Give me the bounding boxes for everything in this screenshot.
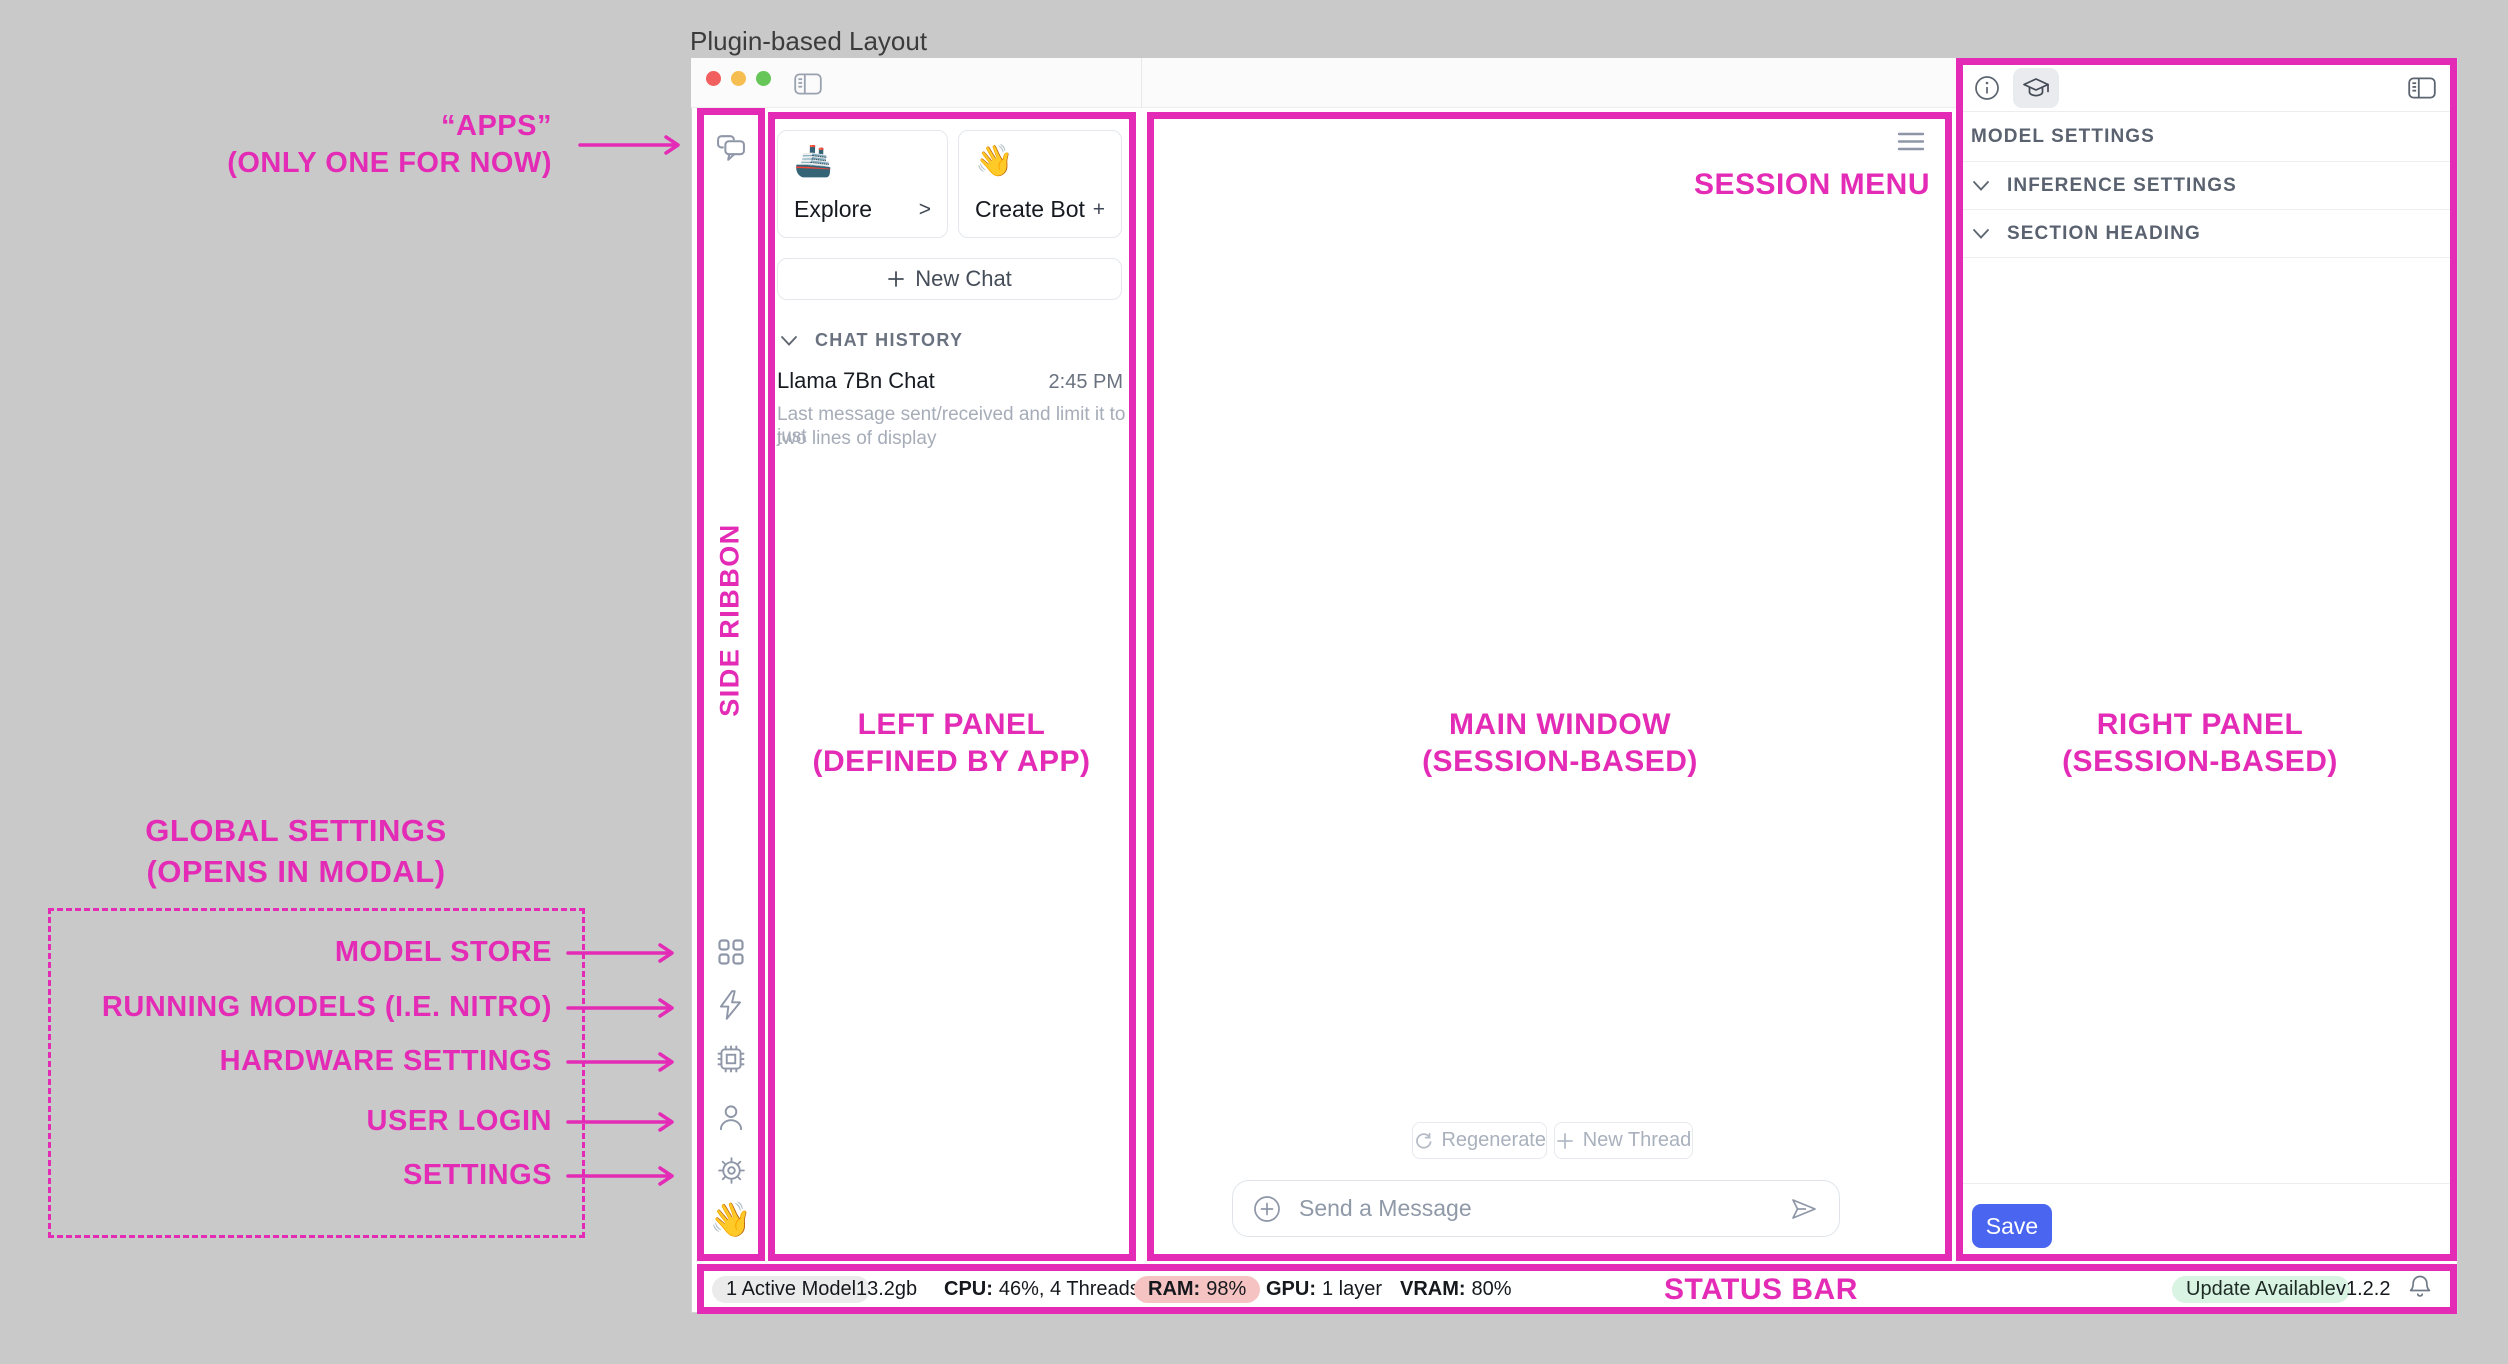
new-thread-label: New Thread xyxy=(1583,1129,1692,1152)
model-settings-text: MODEL SETTINGS xyxy=(1971,126,2155,148)
right-panel-annotation-line2: (SESSION-BASED) xyxy=(2000,743,2400,780)
vram-label: VRAM: xyxy=(1400,1278,1466,1301)
session-menu-annotation: SESSION MENU xyxy=(1590,168,1930,202)
chat-last-message-line2: two lines of display xyxy=(777,428,1127,450)
ram-label: RAM: xyxy=(1148,1278,1200,1301)
wave-emoji-icon[interactable]: 👋 xyxy=(704,1200,758,1240)
update-available-text: Update Available xyxy=(2186,1278,2336,1301)
chevron-right-icon: > xyxy=(919,198,931,222)
inference-settings-text: INFERENCE SETTINGS xyxy=(2007,175,2237,197)
vram-value: 80% xyxy=(1472,1278,1512,1301)
cpu-label: CPU: xyxy=(944,1278,993,1301)
arrow-icon xyxy=(566,1049,684,1075)
model-store-icon[interactable] xyxy=(704,936,758,968)
right-panel-annotation-line1: RIGHT PANEL xyxy=(2000,706,2400,743)
message-input[interactable]: Send a Message xyxy=(1232,1180,1840,1237)
create-bot-card[interactable]: 👋 Create Bot + xyxy=(958,130,1122,238)
status-bar-annotation: STATUS BAR xyxy=(1664,1273,1858,1307)
gpu-value: 1 layer xyxy=(1322,1278,1382,1301)
page-title: Plugin-based Layout xyxy=(690,26,927,57)
attach-plus-icon[interactable] xyxy=(1251,1193,1283,1225)
chat-history-label: CHAT HISTORY xyxy=(815,330,963,351)
left-panel-annotation-line2: (DEFINED BY APP) xyxy=(767,743,1136,780)
model-store-annotation: MODEL STORE xyxy=(60,936,552,969)
arrow-icon xyxy=(566,940,684,966)
minimize-window-button[interactable] xyxy=(731,71,746,86)
right-panel-header xyxy=(1963,65,2450,112)
active-model-text: 1 Active Model xyxy=(726,1278,856,1301)
new-chat-button[interactable]: New Chat xyxy=(777,258,1122,300)
wave-emoji-icon: 👋 xyxy=(975,143,1105,179)
ram-status-badge: RAM: 98% xyxy=(1134,1276,1260,1303)
gpu-status: GPU: 1 layer xyxy=(1266,1276,1382,1303)
model-settings-tab[interactable] xyxy=(2013,68,2059,108)
regenerate-label: Regenerate xyxy=(1441,1129,1546,1152)
cpu-value: 46%, 4 Threads xyxy=(999,1278,1140,1301)
titlebar-divider xyxy=(1141,58,1142,108)
zoom-window-button[interactable] xyxy=(756,71,771,86)
left-panel-annotation-line1: LEFT PANEL xyxy=(767,706,1136,743)
main-window-annotation-line1: MAIN WINDOW xyxy=(1360,706,1760,743)
global-settings-annotation-line1: GLOBAL SETTINGS xyxy=(96,810,496,851)
annotated-layout-mockup: Plugin-based Layout xyxy=(0,0,2508,1364)
plus-icon xyxy=(1556,1132,1574,1150)
apps-annotation: “APPS” (ONLY ONE FOR NOW) xyxy=(150,108,552,182)
message-placeholder: Send a Message xyxy=(1299,1195,1771,1222)
main-window-annotation: MAIN WINDOW (SESSION-BASED) xyxy=(1360,706,1760,780)
create-bot-label: Create Bot xyxy=(975,196,1085,223)
main-window-annotation-line2: (SESSION-BASED) xyxy=(1360,743,1760,780)
version-text: v1.2.2 xyxy=(2336,1276,2390,1303)
side-ribbon-annotation: SIDE RIBBON xyxy=(715,523,746,717)
apps-annotation-line2: (ONLY ONE FOR NOW) xyxy=(150,145,552,182)
arrow-icon xyxy=(578,132,690,158)
close-window-button[interactable] xyxy=(706,71,721,86)
global-settings-annotation: GLOBAL SETTINGS (OPENS IN MODAL) xyxy=(96,810,496,892)
running-models-annotation: RUNNING MODELS (I.E. NITRO) xyxy=(60,991,552,1024)
apps-annotation-line1: “APPS” xyxy=(150,108,552,145)
ram-value: 98% xyxy=(1206,1278,1246,1301)
model-size-text: 13.2gb xyxy=(856,1276,917,1303)
vram-status: VRAM: 80% xyxy=(1400,1276,1512,1303)
notifications-bell-icon[interactable] xyxy=(2406,1272,2434,1302)
chevron-down-icon xyxy=(1971,179,1991,193)
user-login-annotation: USER LOGIN xyxy=(60,1105,552,1138)
model-size-value: 13.2gb xyxy=(856,1278,917,1301)
section-heading-text: SECTION HEADING xyxy=(2007,223,2201,245)
window-titlebar xyxy=(691,58,1956,108)
ship-emoji-icon: 🚢 xyxy=(794,143,931,179)
running-models-icon[interactable] xyxy=(704,988,758,1022)
left-panel-annotation: LEFT PANEL (DEFINED BY APP) xyxy=(767,706,1136,780)
settings-annotation: SETTINGS xyxy=(60,1159,552,1192)
settings-icon[interactable] xyxy=(704,1154,758,1187)
send-icon[interactable] xyxy=(1787,1192,1821,1226)
global-settings-annotation-line2: (OPENS IN MODAL) xyxy=(96,851,496,892)
update-available-badge: Update Available xyxy=(2172,1276,2350,1303)
chat-app-icon[interactable] xyxy=(704,130,758,166)
new-chat-label: New Chat xyxy=(915,266,1012,292)
explore-card[interactable]: 🚢 Explore > xyxy=(777,130,948,238)
right-panel-footer-divider xyxy=(1963,1183,2450,1184)
session-menu-button[interactable] xyxy=(1896,130,1926,154)
active-model-badge: 1 Active Model xyxy=(712,1276,870,1303)
hardware-settings-icon[interactable] xyxy=(704,1042,758,1076)
chat-timestamp: 2:45 PM xyxy=(1049,371,1123,394)
cpu-status: CPU: 46%, 4 Threads xyxy=(944,1276,1140,1303)
plus-icon xyxy=(887,270,905,288)
section-heading-collapsible[interactable]: SECTION HEADING xyxy=(1963,210,2450,258)
save-label: Save xyxy=(1986,1213,2038,1240)
hardware-settings-annotation: HARDWARE SETTINGS xyxy=(60,1045,552,1078)
left-sidebar-toggle-icon[interactable] xyxy=(792,70,824,98)
arrow-icon xyxy=(566,995,684,1021)
right-panel-annotation: RIGHT PANEL (SESSION-BASED) xyxy=(2000,706,2400,780)
explore-label: Explore xyxy=(794,196,872,223)
arrow-icon xyxy=(566,1163,684,1189)
chat-list-item[interactable]: Llama 7Bn Chat 2:45 PM xyxy=(777,368,1123,394)
gpu-label: GPU: xyxy=(1266,1278,1316,1301)
version-value: v1.2.2 xyxy=(2336,1278,2390,1301)
inference-settings-collapsible[interactable]: INFERENCE SETTINGS xyxy=(1963,162,2450,210)
user-login-icon[interactable] xyxy=(704,1100,758,1134)
chevron-down-icon xyxy=(779,334,799,348)
right-sidebar-toggle-icon[interactable] xyxy=(2406,74,2438,102)
arrow-icon xyxy=(566,1109,684,1135)
graduation-cap-icon xyxy=(2021,74,2051,102)
plus-icon: + xyxy=(1093,198,1105,222)
chevron-down-icon xyxy=(1971,227,1991,241)
new-thread-button[interactable]: New Thread xyxy=(1554,1122,1693,1159)
chat-title: Llama 7Bn Chat xyxy=(777,368,935,394)
model-settings-section-label: MODEL SETTINGS xyxy=(1963,112,2450,162)
regenerate-button[interactable]: Regenerate xyxy=(1412,1122,1547,1159)
info-tab-icon[interactable] xyxy=(1973,74,2001,102)
save-button[interactable]: Save xyxy=(1972,1204,2052,1248)
chat-history-header[interactable]: CHAT HISTORY xyxy=(779,330,1122,351)
refresh-icon xyxy=(1413,1131,1432,1151)
